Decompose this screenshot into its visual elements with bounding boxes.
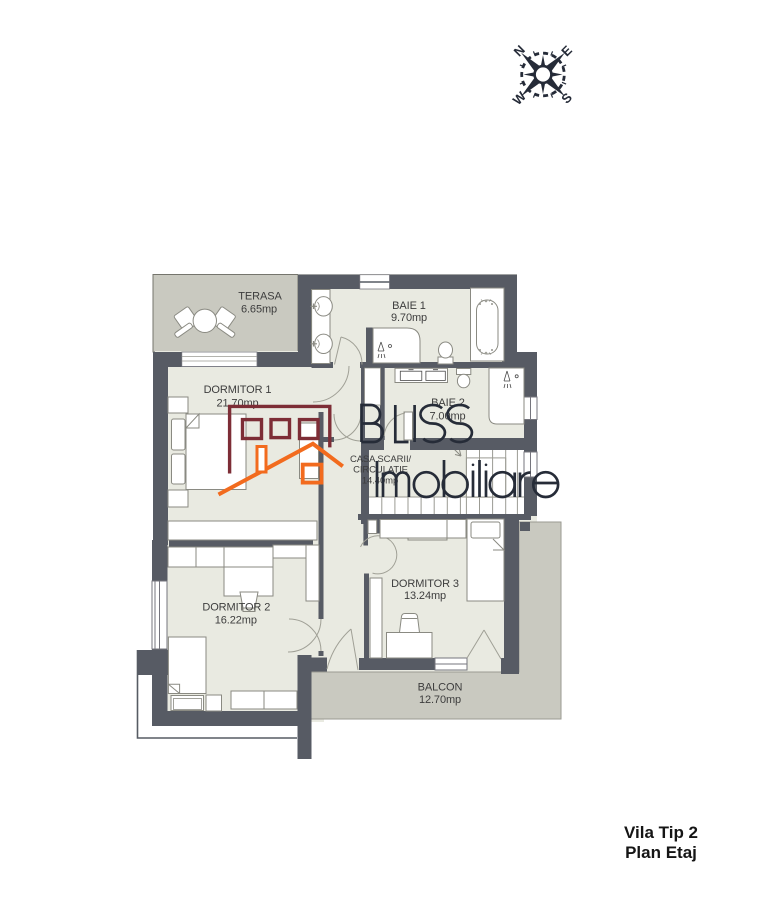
svg-text:BAIE 1: BAIE 1 (392, 300, 426, 312)
svg-text:16.22mp: 16.22mp (215, 614, 257, 626)
svg-text:14.40mp: 14.40mp (362, 476, 398, 487)
svg-text:Plan Etaj: Plan Etaj (625, 843, 697, 862)
svg-text:9.70mp: 9.70mp (391, 312, 427, 324)
svg-text:12.70mp: 12.70mp (419, 694, 461, 706)
svg-text:BALCON: BALCON (418, 681, 463, 693)
svg-text:DORMITOR 2: DORMITOR 2 (202, 601, 270, 613)
svg-text:BAIE 2: BAIE 2 (431, 397, 465, 409)
svg-text:Vila Tip 2: Vila Tip 2 (624, 823, 698, 842)
svg-text:TERASA: TERASA (238, 291, 282, 303)
svg-text:DORMITOR 3: DORMITOR 3 (391, 578, 459, 590)
svg-text:DORMITOR 1: DORMITOR 1 (204, 384, 272, 396)
svg-text:13.24mp: 13.24mp (404, 590, 446, 602)
svg-text:6.65mp: 6.65mp (241, 304, 277, 316)
